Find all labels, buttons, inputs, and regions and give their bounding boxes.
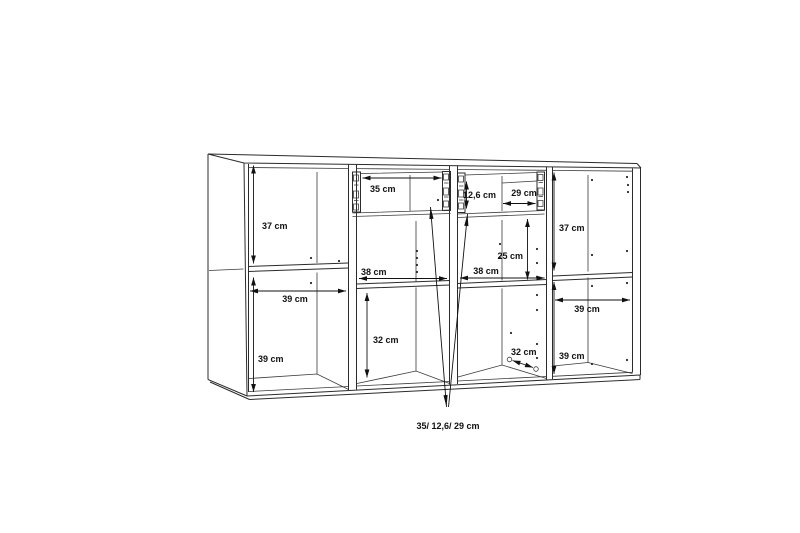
dim-label: 12,6 cm bbox=[463, 190, 496, 200]
floor-edges bbox=[249, 372, 633, 391]
interior-back-corners bbox=[317, 172, 588, 374]
cabinet-left-side-panel bbox=[208, 154, 249, 396]
dim-right-bottom-height: 39 cm bbox=[554, 282, 585, 374]
side-panel-shelf-line bbox=[209, 269, 244, 271]
dim-label: 39 cm bbox=[574, 304, 600, 314]
dim-drawer2-width: 29 cm bbox=[503, 188, 537, 204]
dim-label: 38 cm bbox=[473, 266, 499, 276]
dim-midleft-bottom-height: 32 cm bbox=[367, 293, 399, 378]
dim-right-top-height: 37 cm bbox=[554, 173, 585, 271]
cabinet-bottom-panel bbox=[210, 375, 640, 400]
dim-label: 38 cm bbox=[361, 267, 387, 277]
dim-label: 39 cm bbox=[282, 294, 308, 304]
dim-label: 39 cm bbox=[559, 351, 585, 361]
dim-label: 29 cm bbox=[511, 188, 537, 198]
dim-left-top-height: 37 cm bbox=[254, 166, 288, 264]
dim-midleft-width: 38 cm bbox=[359, 267, 447, 279]
dimension-annotations: 37 cm 39 cm 39 cm 35 cm 38 cm 32 cm 12,6… bbox=[250, 166, 630, 432]
dim-label: 32 cm bbox=[373, 335, 399, 345]
dim-left-width: 39 cm bbox=[250, 291, 346, 304]
cabinet-right-panel bbox=[633, 168, 641, 375]
shelf-mid-left bbox=[357, 281, 450, 289]
dim-label: 35 cm bbox=[370, 184, 396, 194]
dim-label: 37 cm bbox=[559, 223, 585, 233]
shelf-right bbox=[553, 273, 633, 281]
shelf-mid-right bbox=[458, 280, 547, 289]
drawer-dimensions-note: 35/ 12,6/ 29 cm bbox=[416, 207, 479, 431]
furniture-dimension-diagram: 37 cm 39 cm 39 cm 35 cm 38 cm 32 cm 12,6… bbox=[0, 0, 800, 533]
shelf-left bbox=[249, 263, 349, 272]
dim-label: 32 cm bbox=[511, 347, 537, 357]
dim-label: 37 cm bbox=[262, 221, 288, 231]
cabinet-drawing: 37 cm 39 cm 39 cm 35 cm 38 cm 32 cm 12,6… bbox=[0, 0, 800, 533]
dim-label: 25 cm bbox=[497, 251, 523, 261]
ceiling-edges bbox=[249, 168, 633, 172]
divider-3 bbox=[547, 167, 553, 380]
dim-midright-depth: 32 cm bbox=[511, 347, 537, 368]
drawer-left-rail-clips bbox=[354, 174, 449, 210]
dim-right-width: 39 cm bbox=[555, 300, 630, 314]
dim-left-bottom-height: 39 cm bbox=[254, 278, 284, 393]
dim-drawer1-width: 35 cm bbox=[363, 178, 442, 194]
dim-label: 39 cm bbox=[258, 354, 284, 364]
cabinet-top-panel bbox=[208, 154, 641, 168]
dim-arrow bbox=[513, 361, 534, 368]
footnote-label: 35/ 12,6/ 29 cm bbox=[416, 421, 479, 431]
dim-drawer2-height: 12,6 cm bbox=[463, 182, 496, 209]
drawer-left-body bbox=[353, 172, 451, 217]
